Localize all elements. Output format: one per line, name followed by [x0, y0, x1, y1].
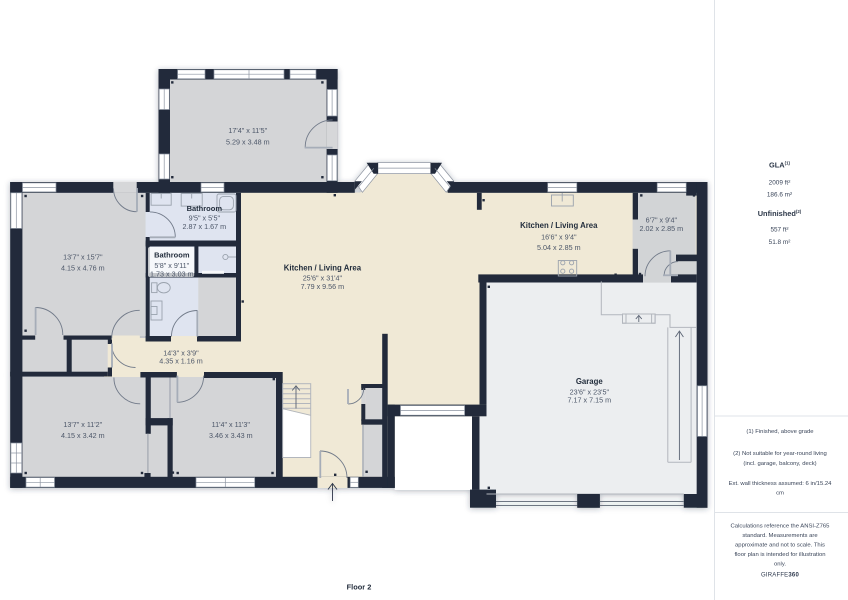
svg-text:16'6" x 9'4": 16'6" x 9'4": [541, 233, 577, 242]
svg-text:5.29 x 3.48 m: 5.29 x 3.48 m: [226, 138, 270, 147]
svg-text:5.04 x 2.85 m: 5.04 x 2.85 m: [537, 243, 581, 252]
svg-text:Bathroom: Bathroom: [187, 204, 223, 213]
svg-text:Kitchen / Living Area: Kitchen / Living Area: [520, 221, 598, 230]
svg-text:Bathroom: Bathroom: [154, 251, 190, 260]
svg-text:17'4" x 11'5": 17'4" x 11'5": [228, 126, 267, 135]
svg-text:Kitchen / Living Area: Kitchen / Living Area: [284, 264, 362, 273]
svg-text:(2) Not suitable for year-roun: (2) Not suitable for year-round living: [733, 451, 827, 457]
svg-text:cm: cm: [776, 491, 784, 497]
svg-text:4.15 x 4.76 m: 4.15 x 4.76 m: [61, 264, 105, 273]
svg-text:Ext. wall thickness assumed: 6: Ext. wall thickness assumed: 6 in/15.24: [729, 481, 833, 487]
svg-text:approximate and not to scale.: approximate and not to scale. This: [735, 543, 825, 549]
svg-text:3.46 x 3.43 m: 3.46 x 3.43 m: [209, 431, 253, 440]
svg-text:Unfinished(2): Unfinished(2): [758, 209, 802, 218]
svg-text:(incl. garage, balcony, deck): (incl. garage, balcony, deck): [743, 461, 816, 467]
svg-text:GIRAFFE360: GIRAFFE360: [761, 573, 799, 579]
svg-text:2009 ft²: 2009 ft²: [769, 180, 791, 187]
svg-text:557 ft²: 557 ft²: [770, 227, 788, 234]
svg-text:(1) Finished, above grade: (1) Finished, above grade: [746, 429, 814, 435]
svg-text:13'7" x 11'2": 13'7" x 11'2": [63, 420, 102, 429]
svg-text:186.6 m²: 186.6 m²: [767, 192, 792, 199]
svg-text:only.: only.: [774, 562, 786, 568]
svg-text:7.79 x 9.56 m: 7.79 x 9.56 m: [301, 282, 345, 291]
svg-text:2.02 x 2.85 m: 2.02 x 2.85 m: [640, 224, 684, 233]
svg-text:Calculations reference the ANS: Calculations reference the ANSI-Z765: [731, 524, 831, 530]
svg-text:51.8 m²: 51.8 m²: [769, 239, 791, 246]
svg-text:7.17 x 7.15 m: 7.17 x 7.15 m: [568, 396, 612, 405]
svg-text:1.73 x 3.03 m: 1.73 x 3.03 m: [150, 270, 194, 279]
svg-text:2.87 x 1.67 m: 2.87 x 1.67 m: [183, 222, 227, 231]
svg-text:11'4" x 11'3": 11'4" x 11'3": [212, 420, 251, 429]
svg-text:standard. Measurements are: standard. Measurements are: [742, 533, 818, 539]
svg-text:Floor 2: Floor 2: [347, 583, 372, 592]
svg-text:floor plan is intended for ill: floor plan is intended for illustration: [734, 552, 825, 558]
svg-text:4.15 x 3.42 m: 4.15 x 3.42 m: [61, 431, 105, 440]
svg-text:4.35 x 1.16 m: 4.35 x 1.16 m: [159, 356, 203, 365]
svg-text:13'7" x 15'7": 13'7" x 15'7": [63, 253, 103, 262]
svg-text:Garage: Garage: [576, 377, 604, 386]
